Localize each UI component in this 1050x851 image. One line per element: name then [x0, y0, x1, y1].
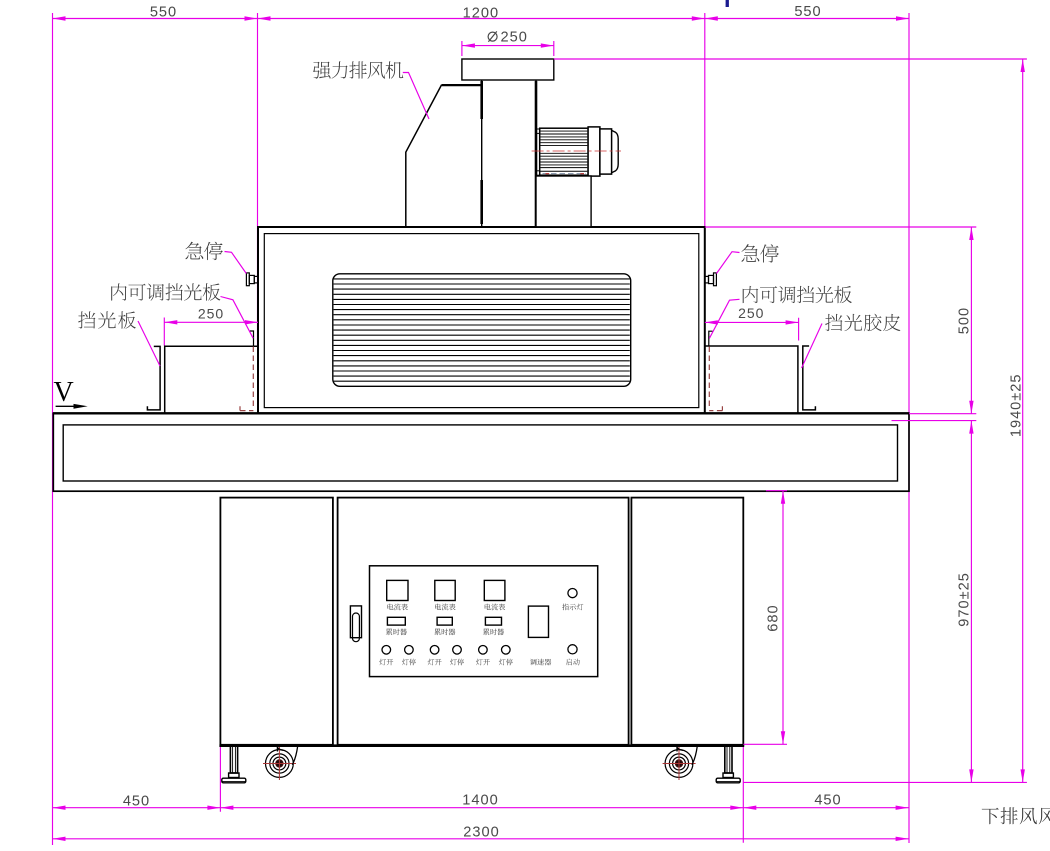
svg-text:450: 450: [123, 794, 150, 810]
svg-text:1200: 1200: [463, 6, 499, 22]
svg-text:500: 500: [957, 307, 973, 334]
svg-text:1400: 1400: [462, 793, 498, 809]
svg-text:550: 550: [150, 4, 177, 20]
svg-text:250: 250: [198, 305, 224, 321]
svg-text:1940±25: 1940±25: [1008, 373, 1024, 437]
svg-text:550: 550: [794, 4, 821, 20]
svg-text:250: 250: [501, 30, 528, 46]
svg-text:V: V: [54, 377, 74, 408]
svg-text:680: 680: [766, 604, 782, 631]
svg-text:970±25: 970±25: [957, 572, 973, 627]
svg-text:450: 450: [814, 793, 841, 809]
svg-text:2300: 2300: [463, 824, 499, 840]
svg-text:250: 250: [738, 305, 764, 321]
